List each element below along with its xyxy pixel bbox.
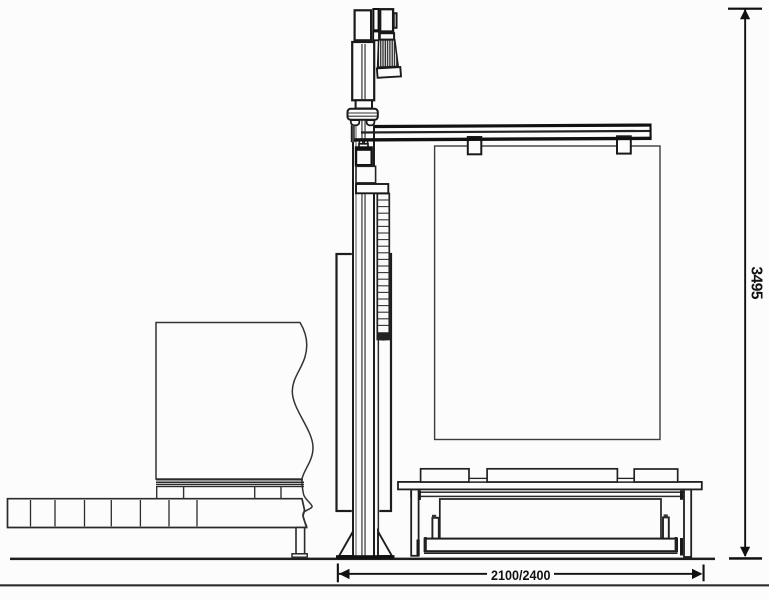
svg-text:2100/2400: 2100/2400: [491, 568, 551, 584]
svg-text:3495: 3495: [748, 267, 765, 300]
